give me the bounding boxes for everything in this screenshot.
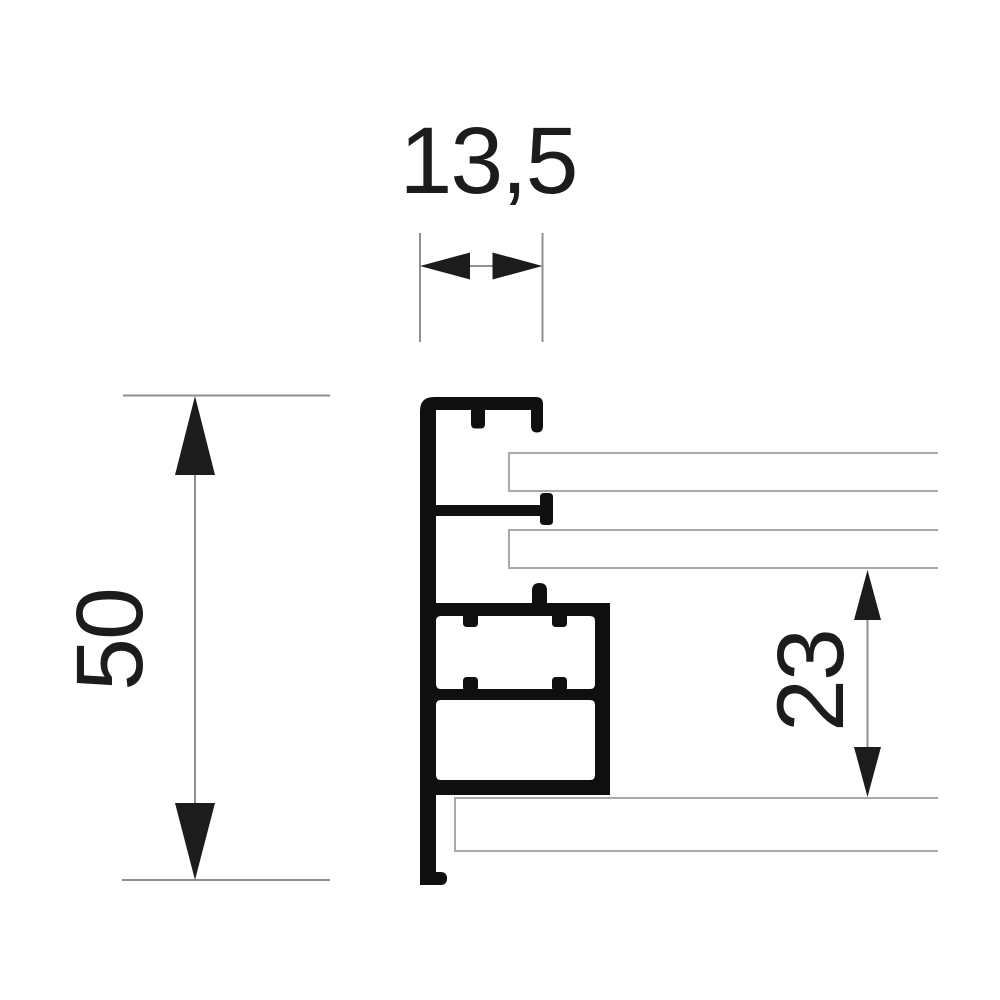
arrow-down-icon	[175, 803, 215, 880]
arrow-up-icon	[175, 396, 215, 475]
arrow-right-icon	[493, 253, 543, 280]
profile-top-stub	[532, 583, 547, 604]
technical-drawing-canvas: 13,5 50 23	[0, 0, 1000, 1000]
dimension-overall-height: 50	[57, 396, 330, 881]
aluminum-profile	[420, 397, 610, 885]
dimension-label-overall-height: 50	[57, 589, 163, 691]
screw-boss-tab	[463, 677, 478, 691]
arrow-down-icon	[854, 747, 881, 797]
profile-cross-section-svg: 13,5 50 23	[0, 0, 1000, 1000]
panel-bottom	[455, 798, 938, 851]
arrow-up-icon	[854, 570, 881, 620]
panel-middle	[509, 530, 938, 568]
panel-top	[509, 453, 938, 491]
profile-t-arm	[436, 493, 553, 525]
screw-boss-tab	[463, 613, 478, 627]
profile-wall-top-arm	[420, 397, 543, 885]
dimension-right-height: 23	[758, 570, 881, 797]
screw-boss-tab	[552, 613, 567, 627]
dimension-label-top-width: 13,5	[400, 108, 577, 214]
dimension-label-right-height: 23	[758, 630, 864, 732]
arrow-left-icon	[420, 253, 470, 280]
profile-box-chambers	[421, 603, 610, 795]
dimension-top-width: 13,5	[400, 108, 577, 342]
screw-boss-tab	[552, 677, 567, 691]
